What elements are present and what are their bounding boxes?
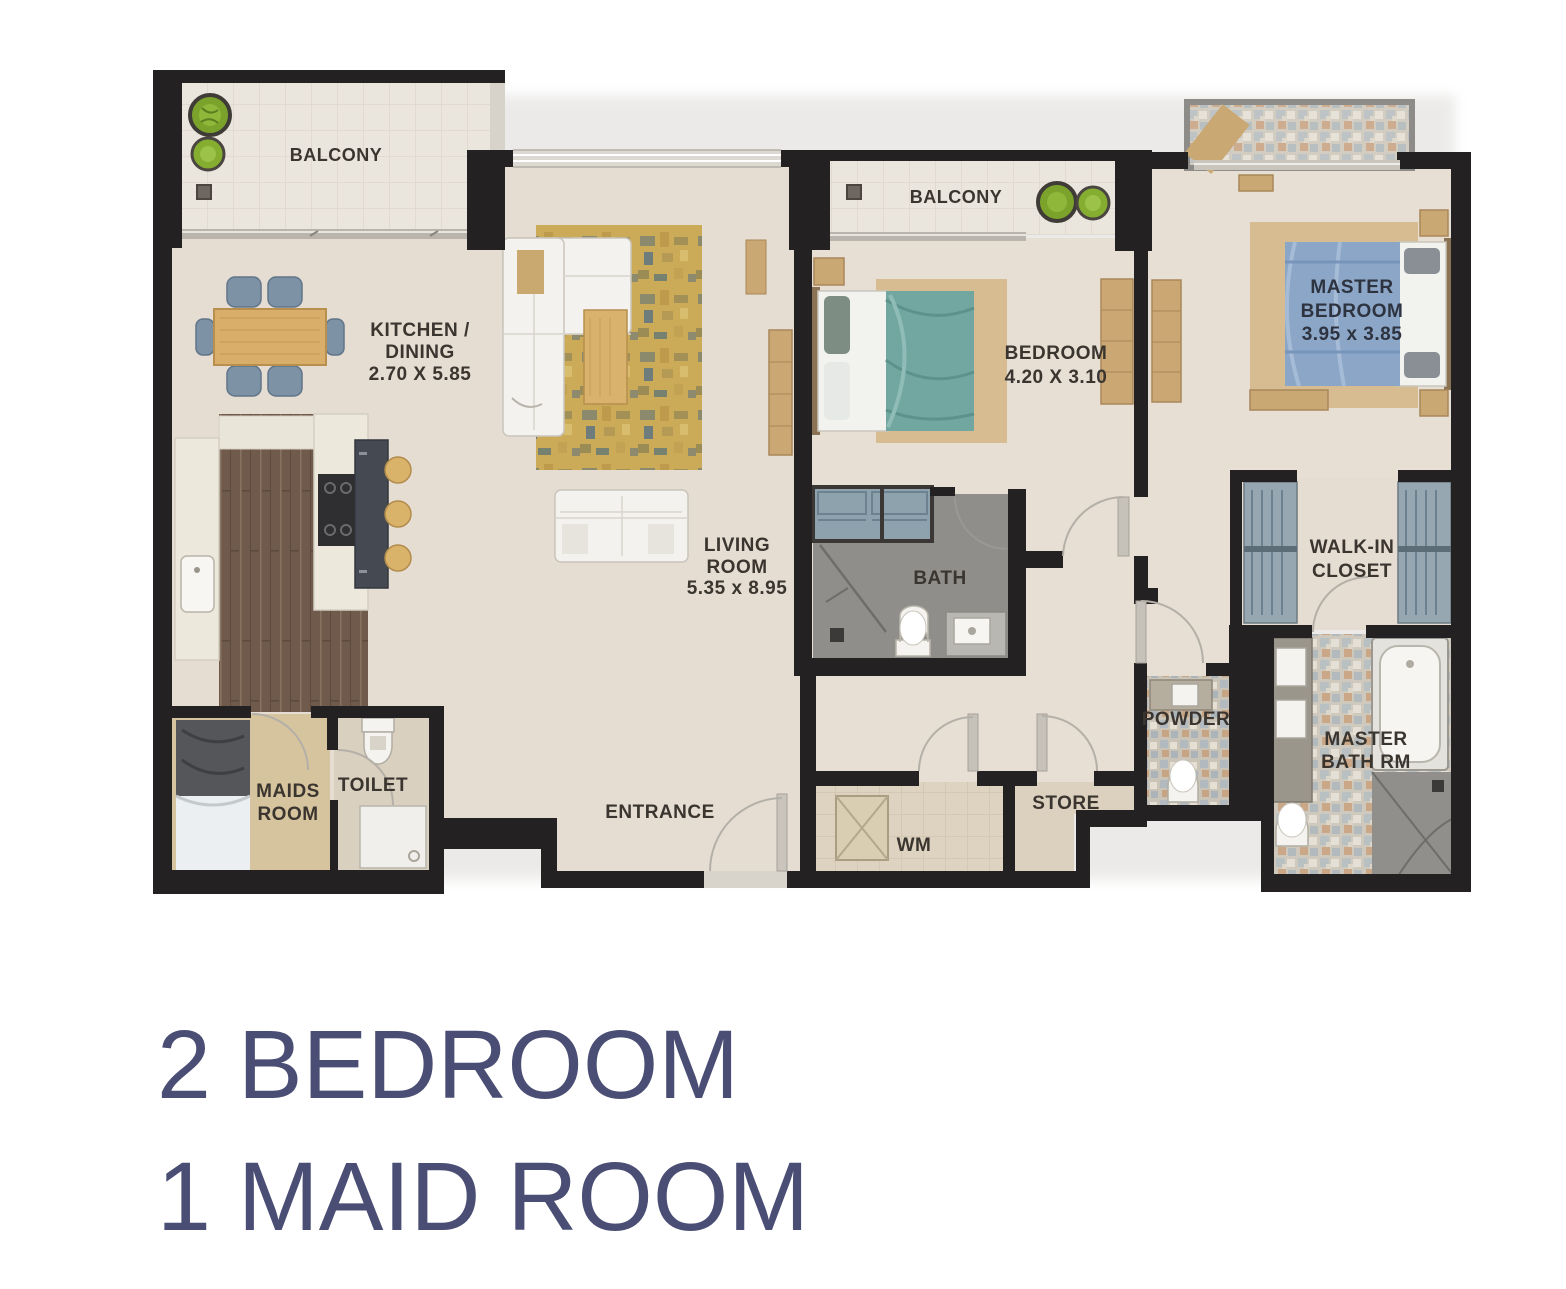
svg-text:ROOM: ROOM [257,804,318,825]
svg-text:2.70 X 5.85: 2.70 X 5.85 [369,364,472,385]
svg-text:MASTER: MASTER [1310,277,1393,298]
svg-text:POWDER: POWDER [1142,709,1231,730]
svg-text:DINING: DINING [385,342,455,363]
svg-text:MASTER: MASTER [1324,729,1407,750]
svg-text:4.20 X 3.10: 4.20 X 3.10 [1005,367,1108,388]
svg-text:MAIDS: MAIDS [256,781,320,802]
svg-text:5.35 x 8.95: 5.35 x 8.95 [687,578,788,599]
svg-text:WM: WM [897,835,932,856]
svg-text:2 BEDROOM: 2 BEDROOM [157,1010,739,1119]
svg-text:WALK-IN: WALK-IN [1310,537,1395,558]
svg-text:3.95 x 3.85: 3.95 x 3.85 [1302,324,1403,345]
svg-text:STORE: STORE [1032,793,1100,814]
svg-text:1 MAID ROOM: 1 MAID ROOM [157,1142,809,1251]
svg-text:KITCHEN /: KITCHEN / [370,320,470,341]
svg-text:BEDROOM: BEDROOM [1005,343,1108,364]
svg-text:BALCONY: BALCONY [910,187,1003,207]
svg-text:BATH RM: BATH RM [1321,752,1411,773]
svg-text:LIVING: LIVING [704,535,770,556]
svg-text:BALCONY: BALCONY [290,145,383,165]
svg-text:CLOSET: CLOSET [1312,561,1392,582]
svg-text:BEDROOM: BEDROOM [1301,301,1404,322]
svg-text:TOILET: TOILET [338,775,408,796]
svg-text:BATH: BATH [913,568,966,589]
svg-text:ENTRANCE: ENTRANCE [605,802,715,823]
svg-text:ROOM: ROOM [706,557,767,578]
